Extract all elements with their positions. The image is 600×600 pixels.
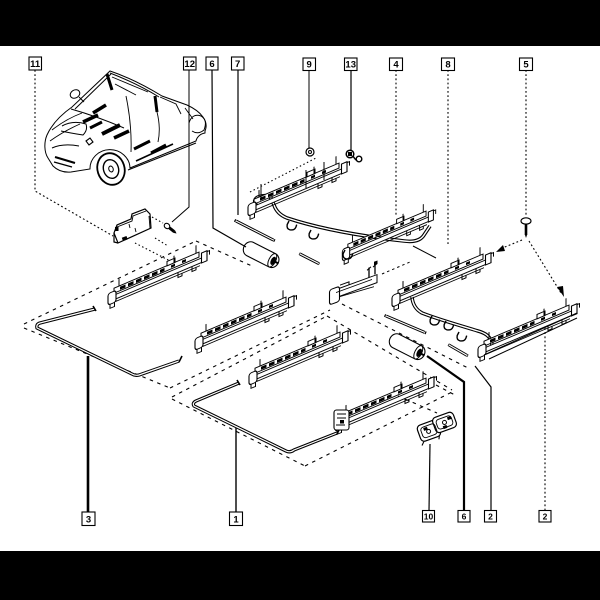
svg-text:11: 11 [30, 59, 41, 70]
svg-text:1: 1 [233, 515, 239, 526]
svg-text:6: 6 [209, 59, 214, 70]
svg-text:6: 6 [462, 512, 467, 522]
svg-text:5: 5 [523, 60, 529, 71]
svg-text:12: 12 [184, 59, 195, 70]
svg-text:13: 13 [345, 60, 356, 71]
svg-text:2: 2 [543, 512, 548, 522]
svg-text:10: 10 [424, 512, 434, 522]
svg-text:7: 7 [235, 59, 240, 70]
svg-text:3: 3 [86, 515, 91, 526]
svg-text:9: 9 [307, 60, 312, 71]
svg-text:8: 8 [445, 60, 450, 71]
svg-text:4: 4 [393, 60, 399, 71]
svg-text:2: 2 [488, 512, 493, 522]
